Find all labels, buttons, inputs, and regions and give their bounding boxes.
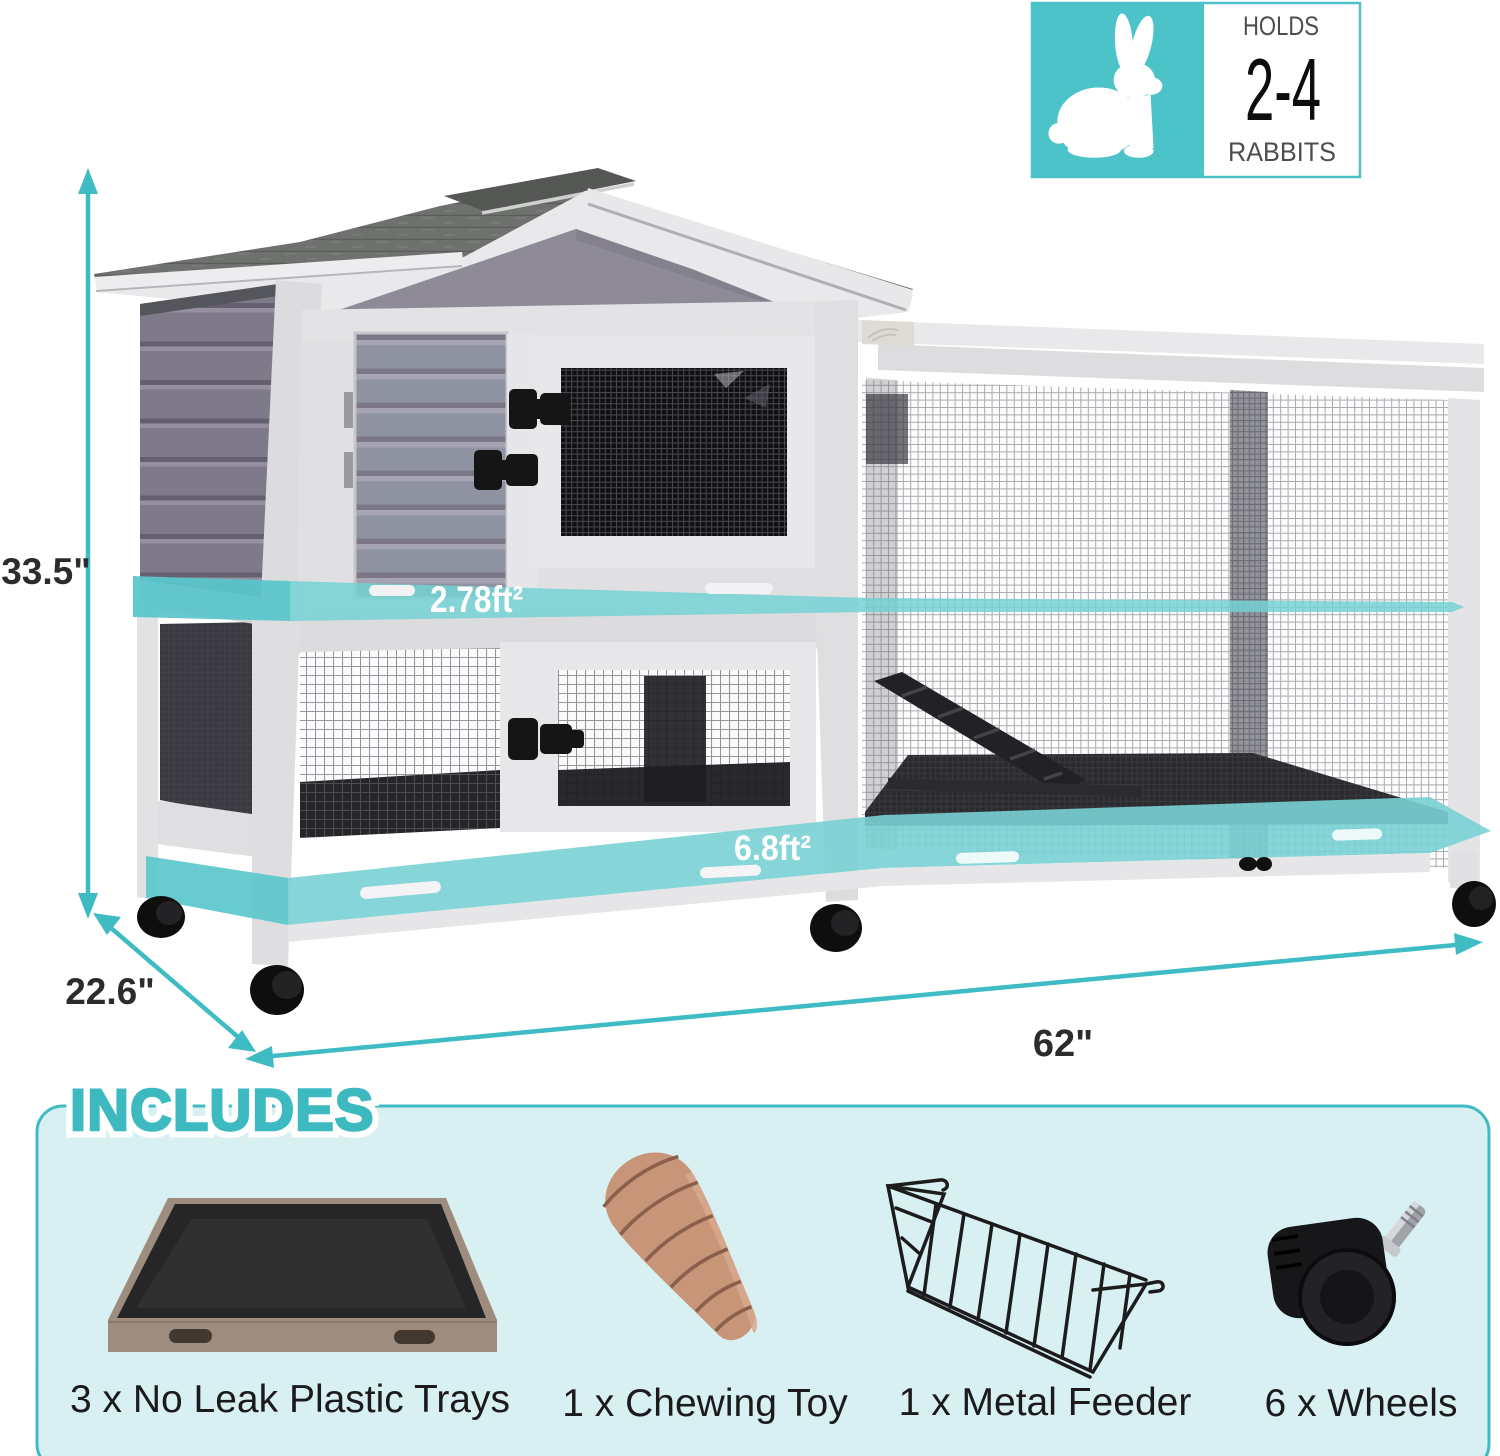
svg-text:1 x Chewing Toy: 1 x Chewing Toy	[562, 1382, 848, 1425]
svg-text:2.78ft²: 2.78ft²	[430, 579, 523, 620]
svg-text:33.5": 33.5"	[1, 551, 91, 592]
svg-text:62": 62"	[1033, 1023, 1093, 1065]
svg-text:6 x Wheels: 6 x Wheels	[1265, 1382, 1458, 1425]
svg-text:INCLUDES: INCLUDES	[70, 1078, 374, 1143]
svg-text:6.8ft²: 6.8ft²	[734, 829, 811, 868]
svg-text:1 x Metal Feeder: 1 x Metal Feeder	[899, 1381, 1192, 1424]
svg-text:HOLDS: HOLDS	[1243, 11, 1319, 41]
svg-text:RABBITS: RABBITS	[1228, 137, 1336, 167]
svg-text:2-4: 2-4	[1245, 40, 1321, 139]
svg-text:3 x No Leak Plastic Trays: 3 x No Leak Plastic Trays	[70, 1378, 510, 1421]
svg-text:22.6": 22.6"	[65, 971, 155, 1012]
